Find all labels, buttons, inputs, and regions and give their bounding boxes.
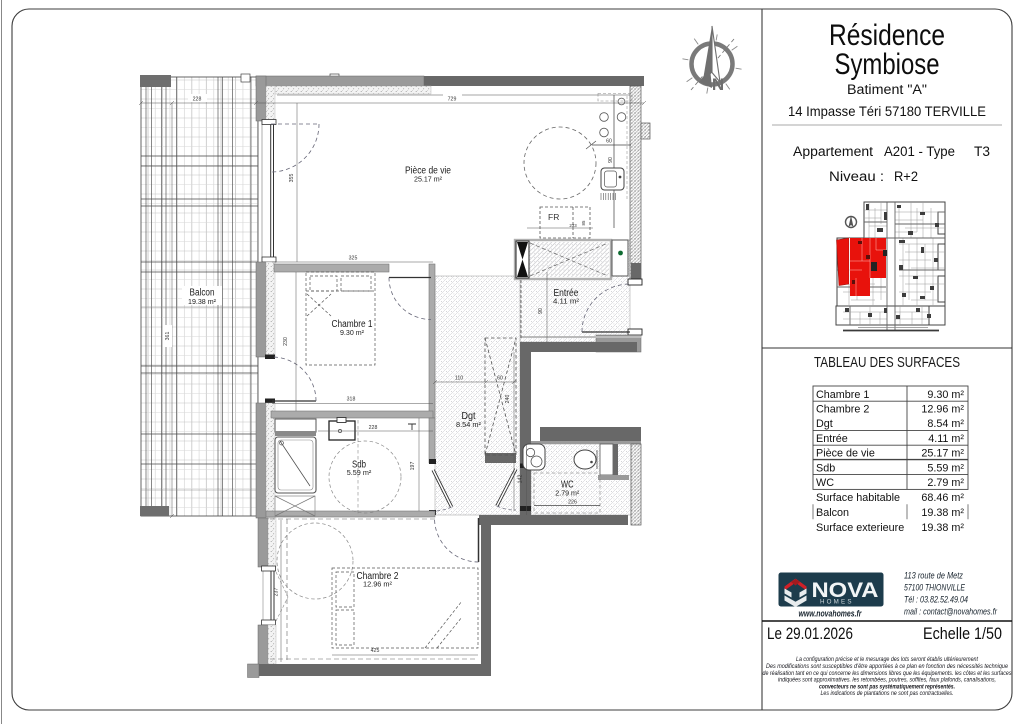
svg-text:Balcon: Balcon [816,507,849,519]
svg-text:Surface habitable: Surface habitable [816,492,900,504]
svg-text:N: N [712,75,724,94]
svg-text:68.46 m²: 68.46 m² [921,492,964,504]
svg-text:14 Impasse Téri 57180 TERVILLE: 14 Impasse Téri 57180 TERVILLE [788,103,986,119]
svg-text:www.novahomes.fr: www.novahomes.fr [799,609,862,619]
svg-text:4.11 m²: 4.11 m² [553,297,580,306]
svg-text:5.59 m²: 5.59 m² [927,462,964,474]
svg-text:Pièce de vie: Pièce de vie [816,448,875,460]
svg-text:A201 - Type: A201 - Type [884,144,955,159]
svg-text:4.11 m²: 4.11 m² [928,433,964,445]
svg-text:230: 230 [283,337,289,346]
svg-text:228: 228 [369,425,378,431]
svg-text:90: 90 [608,157,614,163]
svg-text:12.96 m²: 12.96 m² [921,404,964,416]
svg-text:La configuration précise et le: La configuration précise et le mesurage … [796,656,978,663]
svg-text:Les indications de plantations: Les indications de plantations ne sont p… [821,690,954,697]
svg-text:425: 425 [371,648,380,654]
svg-text:729: 729 [448,97,457,103]
svg-text:228: 228 [193,97,202,103]
svg-text:R+2: R+2 [894,169,918,184]
svg-text:8.54 m²: 8.54 m² [927,418,964,430]
svg-text:T3: T3 [974,144,990,159]
svg-text:Echelle 1/50: Echelle 1/50 [923,625,1002,643]
svg-text:Chambre 1: Chambre 1 [816,389,869,401]
svg-text:60: 60 [497,376,503,382]
svg-text:142: 142 [518,475,524,484]
svg-text:Entrée: Entrée [816,433,848,445]
svg-text:Le 29.01.2026: Le 29.01.2026 [767,625,853,643]
svg-text:90: 90 [538,308,544,314]
svg-text:TABLEAU DES SURFACES: TABLEAU DES SURFACES [814,354,960,371]
svg-text:226: 226 [568,500,577,506]
svg-text:110: 110 [455,376,463,382]
svg-text:Chambre 2: Chambre 2 [816,404,869,416]
svg-text:25.17 m²: 25.17 m² [414,174,443,183]
svg-text:Appartement: Appartement [793,144,873,159]
svg-text:FR: FR [548,212,559,222]
svg-text:19.38 m²: 19.38 m² [921,522,964,534]
svg-text:325: 325 [349,256,358,262]
svg-text:Symbiose: Symbiose [835,48,940,81]
svg-text:237: 237 [274,588,280,597]
svg-text:8.54 m²: 8.54 m² [456,420,482,429]
svg-text:5.59 m²: 5.59 m² [347,468,372,477]
svg-text:Surface exterieure: Surface exterieure [816,522,904,534]
svg-text:197: 197 [410,462,416,471]
svg-text:9.30 m²: 9.30 m² [927,389,964,401]
svg-text:240: 240 [505,395,511,404]
svg-text:57100 THIONVILLE: 57100 THIONVILLE [904,583,966,593]
svg-text:113 route de Metz: 113 route de Metz [904,571,963,581]
svg-text:9.30 m²: 9.30 m² [340,328,365,337]
svg-text:19.38 m²: 19.38 m² [188,297,217,306]
svg-text:WC: WC [816,477,834,489]
svg-text:318: 318 [347,397,356,403]
svg-text:355: 355 [289,174,295,183]
svg-text:Tél : 03.82.52.49.04: Tél : 03.82.52.49.04 [904,595,968,605]
svg-text:HOMES: HOMES [820,599,854,606]
svg-text:12.96 m²: 12.96 m² [363,580,393,589]
svg-text:233: 233 [569,223,577,228]
svg-text:60: 60 [606,139,612,145]
svg-text:Batiment "A": Batiment "A" [847,82,927,97]
svg-text:Niveau :: Niveau : [829,169,884,184]
svg-text:Dgt: Dgt [816,418,833,430]
svg-text:mail : contact@novahomes.fr: mail : contact@novahomes.fr [904,607,998,617]
svg-text:Sdb: Sdb [816,462,835,474]
svg-text:2.79 m²: 2.79 m² [927,477,964,489]
svg-text:25.17 m²: 25.17 m² [921,448,964,460]
svg-text:2.79 m²: 2.79 m² [555,489,580,498]
svg-text:361: 361 [165,332,171,341]
svg-text:19.38 m²: 19.38 m² [921,507,964,519]
svg-text:85: 85 [581,220,586,225]
